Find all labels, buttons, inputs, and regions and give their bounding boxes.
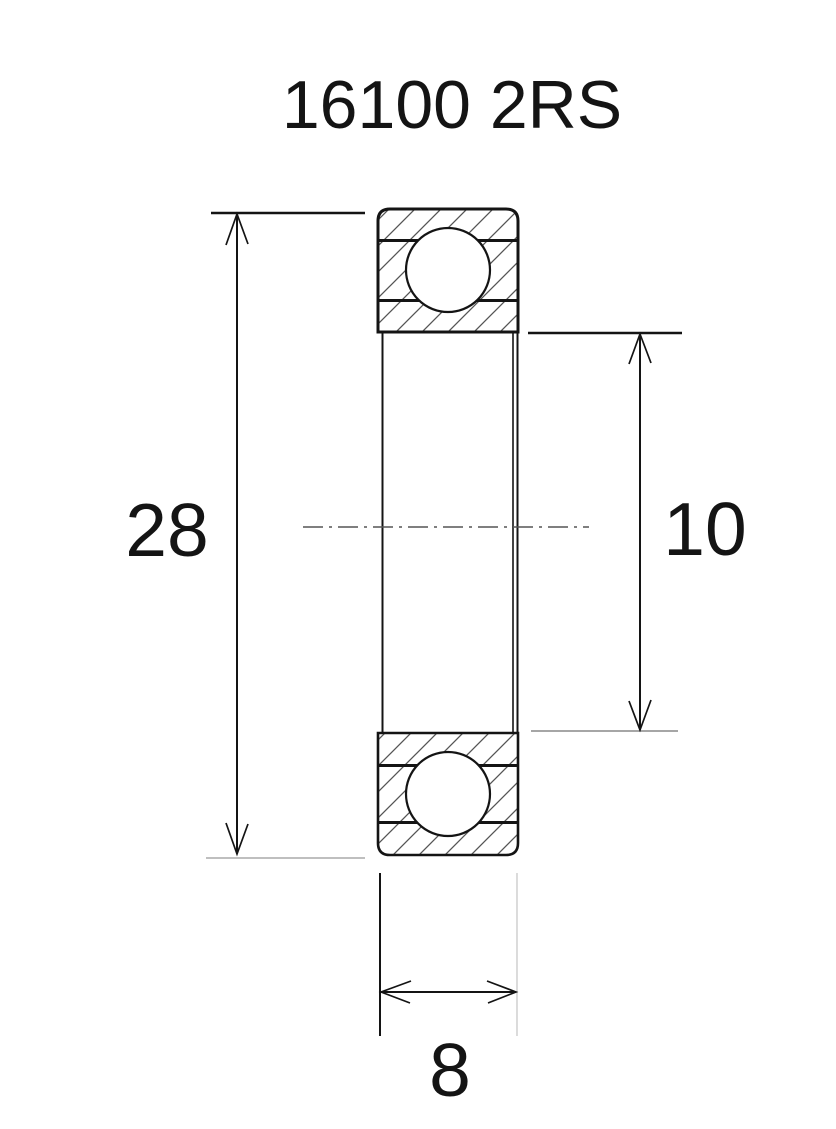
bottom-ball: [406, 752, 490, 836]
part-number-title: 16100 2RS: [282, 67, 622, 143]
bore-lines: [383, 333, 518, 732]
bearing-top-section: [378, 209, 518, 332]
outer-diameter-label: 28: [125, 488, 208, 572]
width-label: 8: [429, 1028, 471, 1112]
bearing-drawing-svg: 16100 2RS: [0, 0, 836, 1129]
dimension-bore-diameter: 10: [528, 333, 747, 731]
bearing-drawing: 16100 2RS: [0, 0, 836, 1129]
dimension-outer-diameter: 28: [125, 213, 365, 858]
bearing-bottom-section: [378, 733, 518, 855]
bore-diameter-label: 10: [663, 487, 746, 571]
top-ball: [406, 228, 490, 312]
dimension-width: 8: [380, 873, 517, 1112]
